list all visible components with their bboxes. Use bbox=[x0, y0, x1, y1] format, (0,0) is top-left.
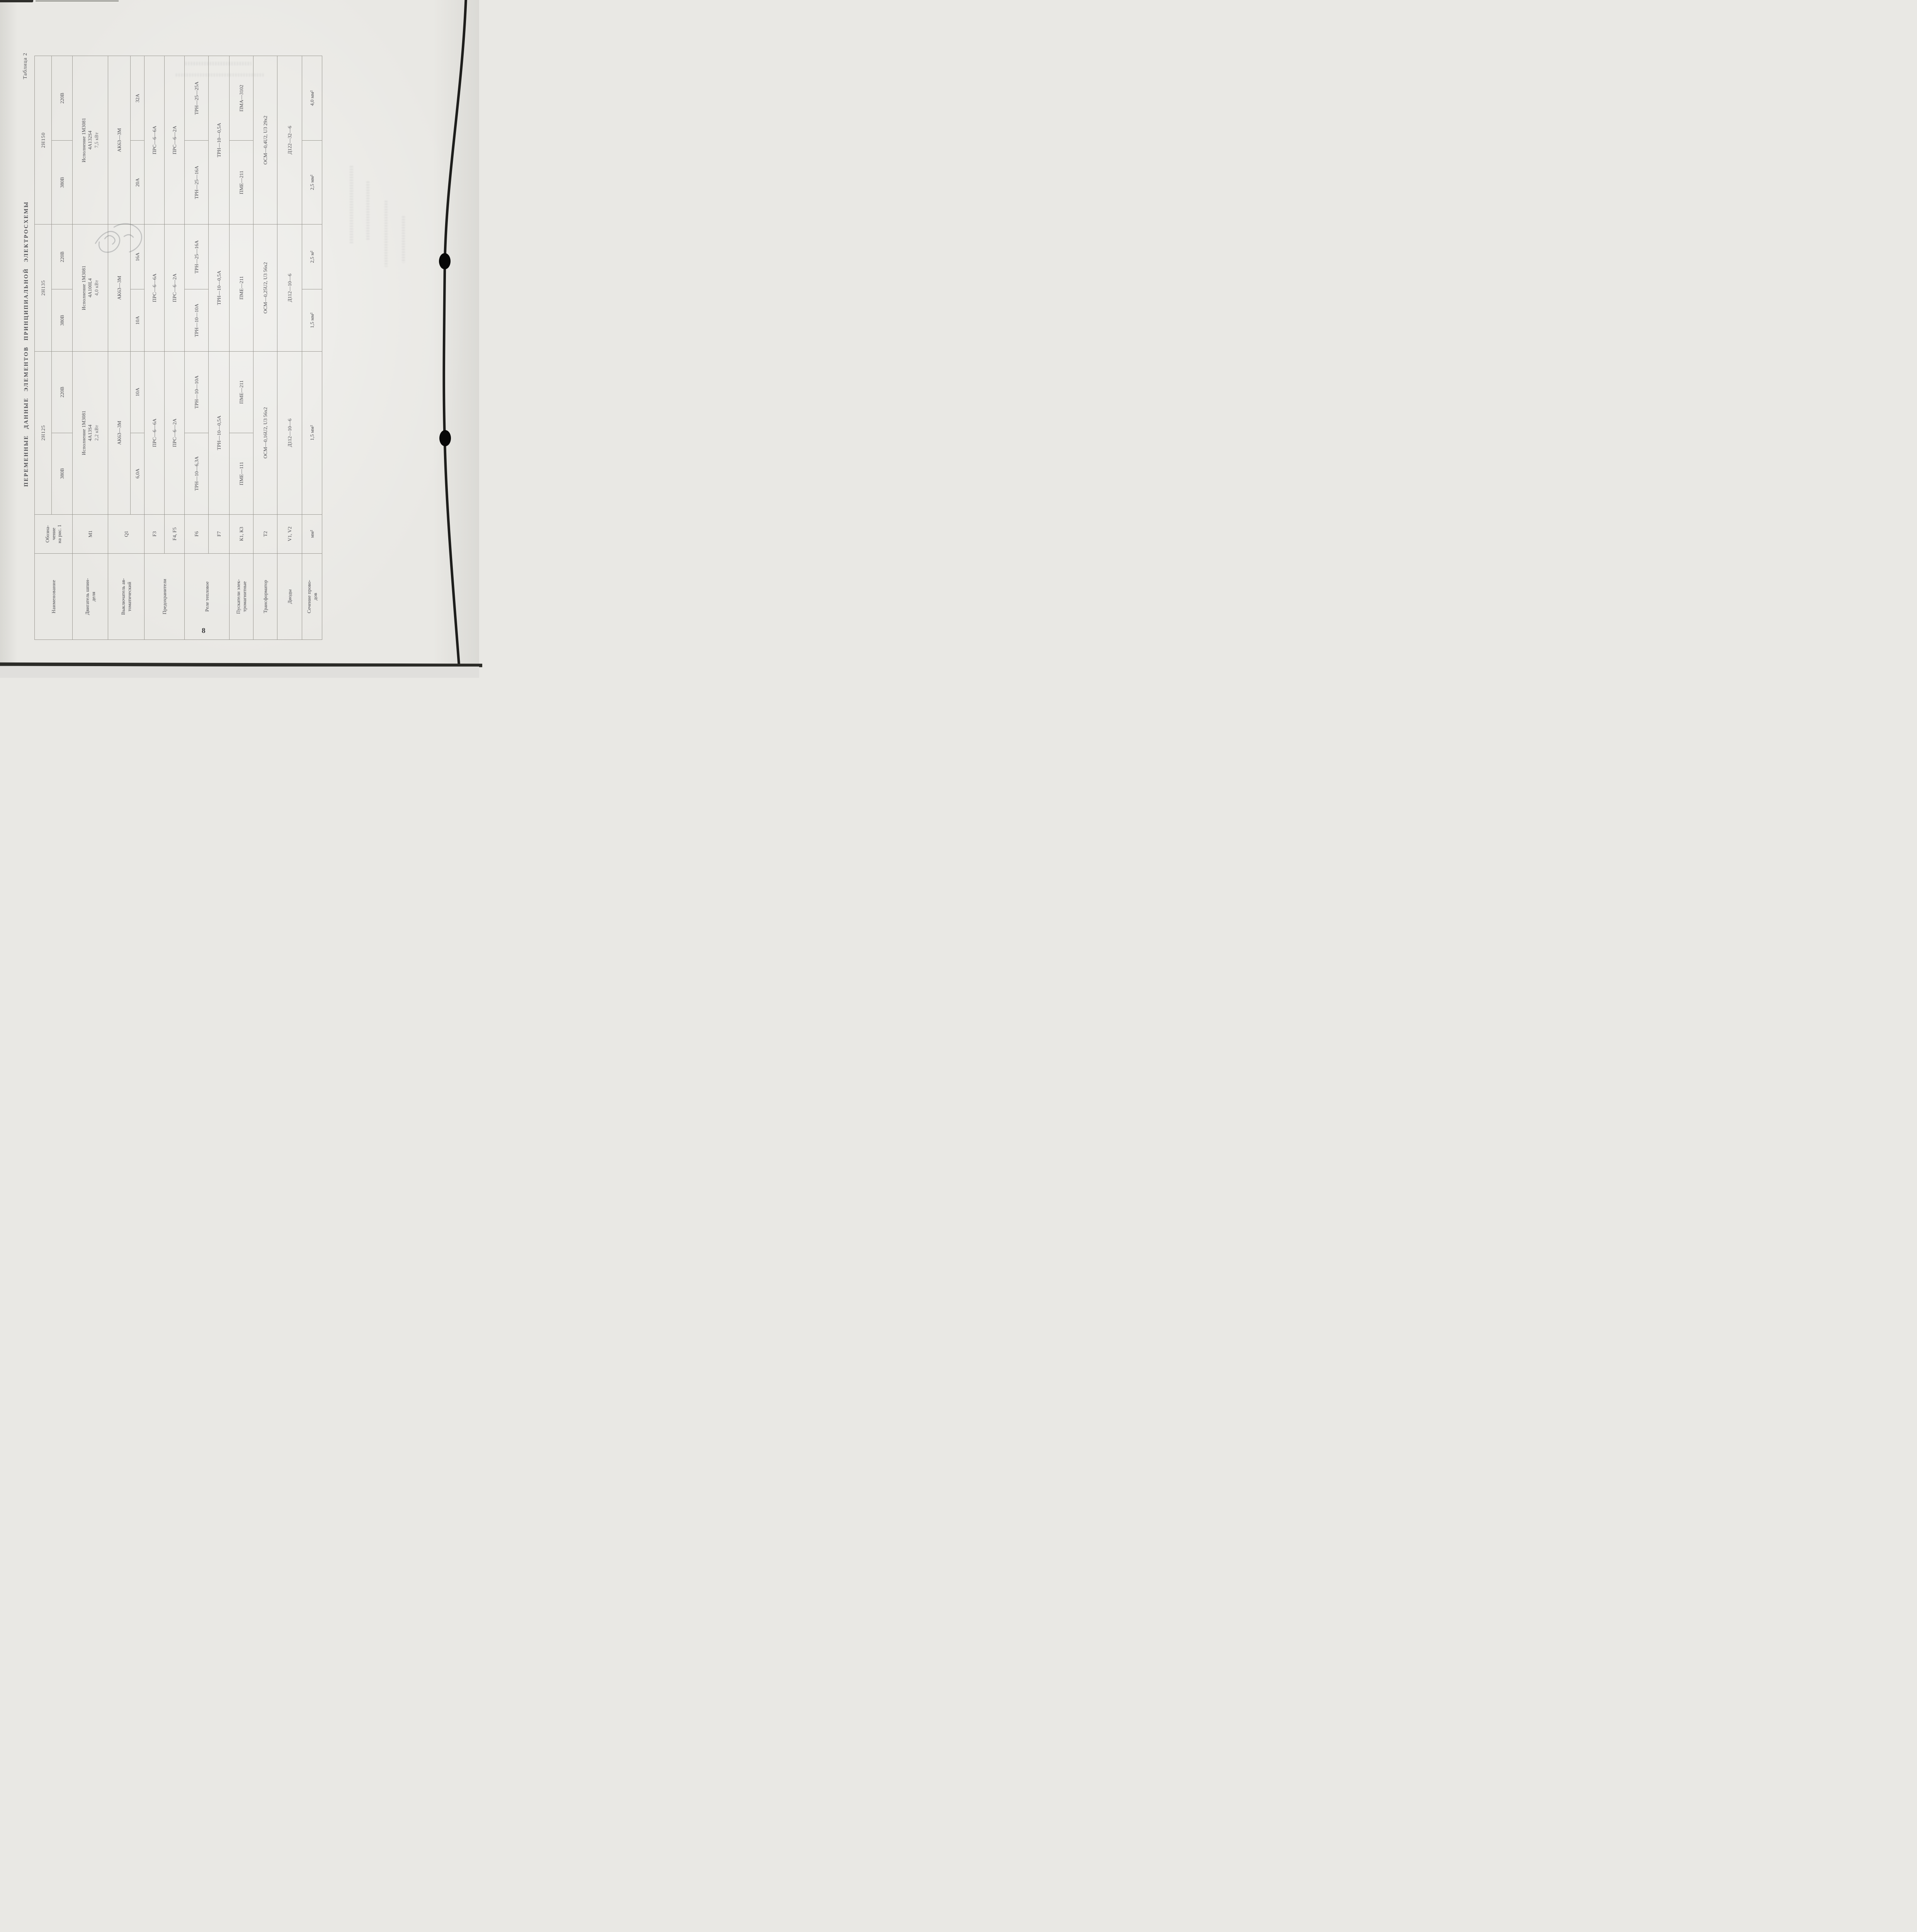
table-caption: Таблица 2 bbox=[22, 53, 29, 79]
cell-wires-135-220: 2,5 м² bbox=[302, 224, 322, 289]
cell-wires-150-380: 2,5 мм² bbox=[302, 141, 322, 224]
motor-line: 4А13S4 bbox=[87, 353, 93, 513]
cell-starter-125-220: ПМЕ—211 bbox=[230, 351, 253, 433]
table-row: Диоды V1, V2 Д112—10—6 Д112—10—6 Д122—32… bbox=[277, 56, 302, 640]
table-row: F7 ТРН—10—0,5А ТРН—10—0,5А ТРН—10—0,5А bbox=[209, 56, 230, 640]
cell-wires-150-220: 4,0 мм² bbox=[302, 56, 322, 141]
designation-v1-v2: V1, V2 bbox=[277, 514, 302, 553]
header-designation: Обозна- чение на рис. 1 bbox=[35, 514, 73, 553]
cell-fuse-f45-2n150: ПРС—6—2А bbox=[165, 56, 185, 224]
cell-breaker-amp-125-380: 6,0А bbox=[131, 433, 145, 514]
cell-motor-2n125: Исполнение 1М3081 4А13S4 2,2 кВт bbox=[73, 351, 108, 514]
designation-q1: Q1 bbox=[108, 514, 145, 553]
row-label-starters: Пускатели элек- тромагнитные bbox=[230, 553, 253, 639]
header-model-2n125: 2Н125 bbox=[35, 351, 52, 514]
data-table: Наименование Обозна- чение на рис. 1 2Н1… bbox=[34, 56, 322, 640]
cell-transformer-2n135: ОСМ—0,25U2, U3 56х2 bbox=[253, 224, 277, 352]
table-row: Пускатели элек- тромагнитные К1, К3 ПМЕ—… bbox=[230, 56, 253, 640]
cell-relay-f6-125-380: ТРН—10—6,3А bbox=[185, 433, 209, 514]
cell-diodes-2n135: Д112—10—6 bbox=[277, 224, 302, 352]
punch-hole-bottom bbox=[439, 430, 451, 446]
designation-m1: М1 bbox=[73, 514, 108, 553]
header-model-2n135: 2Н135 bbox=[35, 224, 52, 352]
row-label-relay: Реле тепловое bbox=[185, 553, 230, 639]
cell-diodes-2n150: Д122—32—6 bbox=[277, 56, 302, 224]
motor-line: Исполнение 1М3081 bbox=[81, 353, 87, 513]
page-number: 8 bbox=[202, 627, 206, 635]
designation-f6: F6 bbox=[185, 514, 209, 553]
table-row: F4, F5 ПРС—6—2А ПРС—6—2А ПРС—6—2А bbox=[165, 56, 185, 640]
cell-relay-f6-150-380: ТРН—25—16А bbox=[185, 141, 209, 224]
row-label-transformer: Трансформатор bbox=[253, 553, 277, 639]
bleedthrough-text bbox=[402, 216, 405, 263]
header-voltage-220: 220В bbox=[52, 351, 73, 433]
rotated-table-block: Таблица 2 ПЕРЕМЕННЫЕ ДАННЫЕ ЭЛЕМЕНТОВ ПР… bbox=[22, 46, 338, 641]
cell-relay-f6-150-220: ТРН—25—25А bbox=[185, 56, 209, 141]
table-row: Предохранители F3 ПРС—6—6А ПРС—6—6А ПРС—… bbox=[145, 56, 165, 640]
header-voltage-380: 380В bbox=[52, 433, 73, 514]
bleedthrough-text bbox=[366, 182, 369, 240]
cell-fuse-f3-2n150: ПРС—6—6А bbox=[145, 56, 165, 224]
cell-breaker-type-2n125: АК63—3М bbox=[108, 351, 131, 514]
cell-breaker-type-2n150: АК63—3М bbox=[108, 56, 131, 224]
row-label-breaker: Выключатель ав- томатический bbox=[108, 553, 145, 639]
cell-fuse-f45-2n125: ПРС—6—2А bbox=[165, 351, 185, 514]
cell-wires-135-380: 1,5 мм² bbox=[302, 289, 322, 351]
cell-starter-150-380: ПМЕ—211 bbox=[230, 141, 253, 224]
row-label-diodes: Диоды bbox=[277, 553, 302, 639]
designation-f3: F3 bbox=[145, 514, 165, 553]
scan-edge-top bbox=[36, 0, 119, 2]
designation-f4-f5: F4, F5 bbox=[165, 514, 185, 553]
cell-breaker-amp-150-380: 20А bbox=[131, 141, 145, 224]
motor-line: 4А132S4 bbox=[87, 58, 93, 223]
motor-line: 7,5 кВт bbox=[94, 58, 100, 223]
header-voltage-380: 380В bbox=[52, 289, 73, 351]
cell-relay-f6-135-380: ТРН—10—10А bbox=[185, 289, 209, 351]
designation-f7: F7 bbox=[209, 514, 230, 553]
row-label-motor: Двигатель шпин- деля bbox=[73, 553, 108, 639]
scanned-page: { "page": { "caption": "Таблица 2", "tit… bbox=[0, 0, 479, 678]
cell-starter-150-220: ПМА—3102 bbox=[230, 56, 253, 141]
cell-relay-f7-2n150: ТРН—10—0,5А bbox=[209, 56, 230, 224]
designation-mm2: мм² bbox=[302, 514, 322, 553]
motor-line: Исполнение 1М3081 bbox=[81, 58, 87, 223]
page-title: ПЕРЕМЕННЫЕ ДАННЫЕ ЭЛЕМЕНТОВ ПРИНЦИПИАЛЬН… bbox=[23, 93, 30, 595]
bleedthrough-text bbox=[350, 166, 353, 243]
binding-edge-line bbox=[444, 0, 466, 678]
table-row: Наименование Обозна- чение на рис. 1 2Н1… bbox=[35, 56, 52, 640]
cell-starter-125-380: ПМЕ—111 bbox=[230, 433, 253, 514]
cell-diodes-2n125: Д112—10—6 bbox=[277, 351, 302, 514]
table-row: Двигатель шпин- деля М1 Исполнение 1М308… bbox=[73, 56, 108, 640]
table-row: Реле тепловое F6 ТРН—10—6,3А ТРН—10—10А … bbox=[185, 56, 209, 640]
cell-relay-f7-2n125: ТРН—10—0,5А bbox=[209, 351, 230, 514]
designation-k1-k3: К1, К3 bbox=[230, 514, 253, 553]
scan-edge-top bbox=[0, 0, 33, 2]
cell-relay-f6-135-220: ТРН—25—16А bbox=[185, 224, 209, 289]
cell-breaker-amp-125-220: 10А bbox=[131, 351, 145, 433]
punch-hole-top bbox=[439, 253, 451, 269]
cell-fuse-f3-2n125: ПРС—6—6А bbox=[145, 351, 165, 514]
cell-relay-f6-125-220: ТРН—10—10А bbox=[185, 351, 209, 433]
cell-transformer-2n125: ОСМ—0,16U2, U3 56х2 bbox=[253, 351, 277, 514]
header-voltage-380: 380В bbox=[52, 141, 73, 224]
header-voltage-220: 220В bbox=[52, 56, 73, 141]
designation-t2: Т2 bbox=[253, 514, 277, 553]
header-voltage-220: 220В bbox=[52, 224, 73, 289]
row-label-wires: Сечение прово- дов bbox=[302, 553, 322, 639]
cell-fuse-f45-2n135: ПРС—6—2А bbox=[165, 224, 185, 352]
cell-relay-f7-2n135: ТРН—10—0,5А bbox=[209, 224, 230, 352]
cell-transformer-2n150: ОСМ—0,4U2, U3 29х2 bbox=[253, 56, 277, 224]
cell-wires-2n125: 1,5 мм² bbox=[302, 351, 322, 514]
cell-breaker-amp-150-220: 32А bbox=[131, 56, 145, 141]
cell-motor-2n150: Исполнение 1М3081 4А132S4 7,5 кВт bbox=[73, 56, 108, 224]
row-label-fuses: Предохранители bbox=[145, 553, 185, 639]
table-row: Трансформатор Т2 ОСМ—0,16U2, U3 56х2 ОСМ… bbox=[253, 56, 277, 640]
stamp-mark bbox=[91, 216, 149, 263]
motor-line: Исполнение 1М3081 bbox=[81, 226, 87, 350]
header-model-2n150: 2Н150 bbox=[35, 56, 52, 224]
motor-line: 2,2 кВт bbox=[94, 353, 100, 513]
table-row: Выключатель ав- томатический Q1 АК63—3М … bbox=[108, 56, 131, 640]
cell-starter-2n135: ПМЕ—211 bbox=[230, 224, 253, 352]
bleedthrough-text bbox=[384, 201, 388, 267]
scan-edge-backing bbox=[0, 667, 479, 678]
table-row: Сечение прово- дов мм² 1,5 мм² 1,5 мм² 2… bbox=[302, 56, 322, 640]
header-name: Наименование bbox=[35, 553, 73, 639]
cell-breaker-amp-135-380: 10А bbox=[131, 289, 145, 351]
